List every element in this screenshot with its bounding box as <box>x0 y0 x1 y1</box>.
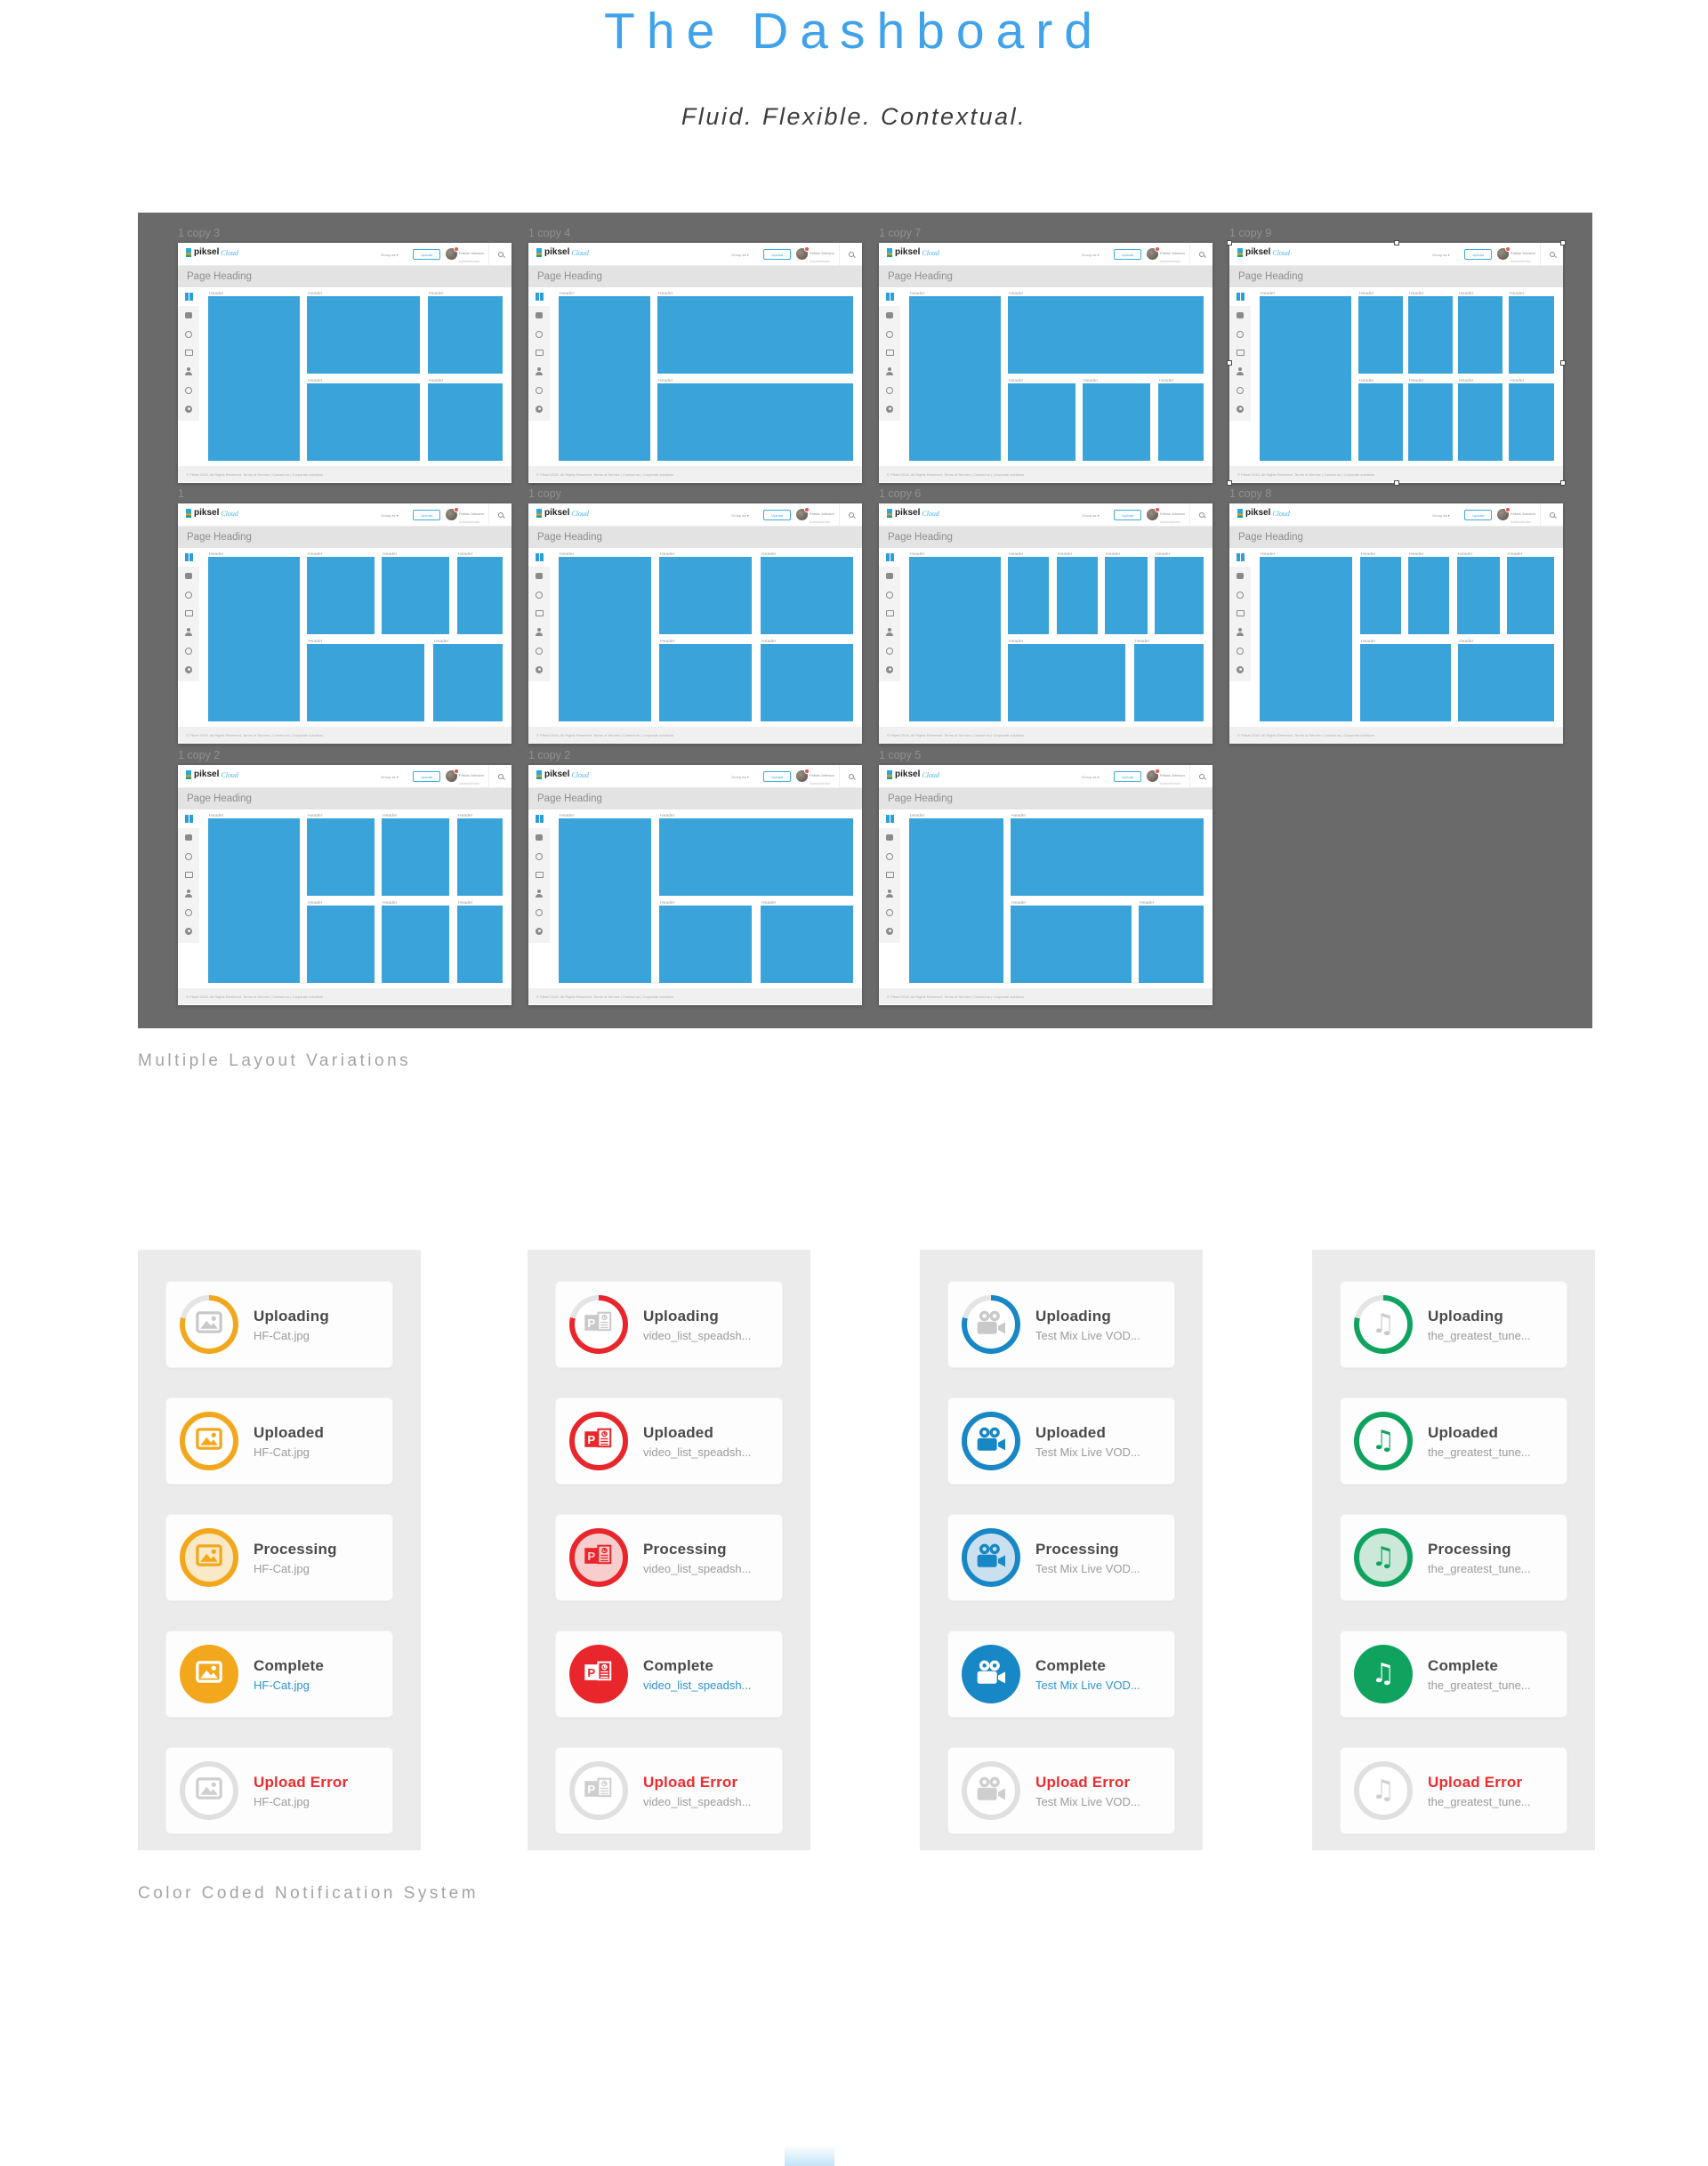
piksel-logo: pikselCloud <box>536 248 589 257</box>
content-block-header: Header <box>1140 900 1154 905</box>
upload-button[interactable]: Upload <box>763 249 791 260</box>
status-badge <box>962 1412 1020 1470</box>
search-icon <box>1550 252 1555 257</box>
sidebar-item-settings[interactable] <box>178 399 199 418</box>
page-heading-band: Page Heading <box>528 788 862 809</box>
search-button[interactable] <box>488 503 512 527</box>
sidebar-item-users[interactable] <box>178 362 199 381</box>
dashboard-mockup[interactable]: pikselCloudGroup as ▾UploadFelicia Johns… <box>528 765 862 1005</box>
layouts-caption: Multiple Layout Variations <box>138 1051 411 1071</box>
user-role: Administrator <box>1511 259 1525 263</box>
content-block-header: Header <box>910 813 924 817</box>
avatar[interactable] <box>446 248 457 260</box>
mockup-footer: © Piksel 2015. All Rights Reserved. Term… <box>178 988 512 1004</box>
sidebar-item-media[interactable] <box>879 828 900 847</box>
sidebar-item-users-icon <box>886 894 893 898</box>
notification-filename: HF-Cat.jpg <box>254 1679 324 1692</box>
selection-handle[interactable] <box>1227 360 1232 366</box>
sidebar-item-devices[interactable] <box>528 343 550 362</box>
dashboard-mockup[interactable]: pikselCloudGroup as ▾UploadFelicia Johns… <box>528 243 862 483</box>
sidebar-item-devices-icon <box>886 872 894 878</box>
content-block-header: Header <box>1261 552 1275 556</box>
avatar[interactable] <box>1497 248 1509 260</box>
notification-card[interactable]: Upload ErrorTest Mix Live VOD... <box>947 1747 1175 1834</box>
content-block: Header <box>1458 383 1503 461</box>
dashboard-mockup[interactable]: pikselCloudGroup as ▾UploadFelicia Johns… <box>879 765 1213 1005</box>
sidebar-item-analytics[interactable] <box>879 585 900 604</box>
notification-text: Upload ErrorHF-Cat.jpg <box>254 1774 348 1808</box>
powerpoint-icon: P <box>584 1776 614 1806</box>
sidebar-item-users[interactable] <box>879 623 900 641</box>
sidebar-item-media[interactable] <box>879 306 900 325</box>
dashboard-mockup[interactable]: pikselCloudGroup as ▾UploadFelicia Johns… <box>528 503 862 744</box>
sidebar-item-users[interactable] <box>1229 623 1251 641</box>
group-as-dropdown[interactable]: Group as ▾ <box>731 775 749 779</box>
status-badge-hole: P <box>575 1300 623 1349</box>
piksel-logo-text: piksel <box>895 770 920 779</box>
sidebar-item-history-icon <box>185 648 192 655</box>
dashboard-mockup[interactable]: pikselCloudGroup as ▾UploadFelicia Johns… <box>178 503 512 744</box>
status-badge-hole <box>185 1300 233 1349</box>
mockup-footer-text: © Piksel 2015. All Rights Reserved. Term… <box>186 994 323 999</box>
group-as-dropdown[interactable]: Group as ▾ <box>381 513 399 518</box>
sidebar-item-media[interactable] <box>1229 567 1251 585</box>
content-block: Header <box>1360 557 1401 634</box>
sidebar-item-dashboard[interactable] <box>1229 287 1251 306</box>
status-badge <box>180 1295 238 1354</box>
user-role: Administrator <box>459 781 473 785</box>
sidebar-item-analytics[interactable] <box>178 847 199 866</box>
upload-button[interactable]: Upload <box>413 771 440 782</box>
mockup-footer-text: © Piksel 2015. All Rights Reserved. Term… <box>536 994 673 999</box>
sidebar-item-users[interactable] <box>879 362 900 381</box>
piksel-logo-text: piksel <box>194 770 219 779</box>
sidebar-item-settings[interactable] <box>528 399 550 418</box>
sidebar-item-media-icon <box>185 573 192 579</box>
sidebar-item-history[interactable] <box>528 903 550 922</box>
avatar[interactable] <box>1497 509 1509 520</box>
sidebar-item-dashboard[interactable] <box>178 809 199 828</box>
music-note-icon: ♫ <box>1372 1661 1396 1687</box>
selection-handle[interactable] <box>1227 480 1232 486</box>
status-badge <box>180 1761 238 1820</box>
sidebar-item-analytics-icon <box>886 331 893 338</box>
notification-card[interactable]: Upload ErrorHF-Cat.jpg <box>165 1747 393 1834</box>
sidebar-item-settings-icon <box>185 406 192 413</box>
sidebar-item-history-icon <box>886 387 893 394</box>
sidebar-item-dashboard[interactable] <box>178 287 199 306</box>
avatar[interactable] <box>796 509 808 520</box>
sidebar-item-devices[interactable] <box>879 866 900 884</box>
sidebar-item-history-icon <box>536 909 543 916</box>
mockup-topbar: pikselCloudGroup as ▾UploadFelicia Johns… <box>178 503 512 527</box>
group-as-dropdown[interactable]: Group as ▾ <box>1432 253 1450 257</box>
user-info: Felicia JohnsonAdministrator <box>1160 510 1188 526</box>
user-name: Felicia Johnson <box>1511 251 1525 255</box>
selection-handle[interactable] <box>1394 240 1399 246</box>
sidebar-item-media-icon <box>185 834 192 841</box>
sidebar-item-analytics[interactable] <box>1229 585 1251 604</box>
notification-card[interactable]: PUpload Errorvideo_list_speadsh... <box>555 1747 783 1834</box>
sidebar-item-settings[interactable] <box>879 399 900 418</box>
sidebar-item-users-icon <box>886 372 893 375</box>
mockup-sidebar <box>879 809 900 943</box>
notification-card[interactable]: PCompletevideo_list_speadsh... <box>555 1631 783 1718</box>
sidebar-item-settings-icon <box>536 928 543 935</box>
content-block-header: Header <box>560 291 574 295</box>
search-button[interactable] <box>1189 765 1213 788</box>
svg-text:P: P <box>587 1665 595 1679</box>
sidebar-item-history[interactable] <box>1229 381 1251 399</box>
sidebar-item-settings-icon <box>886 928 893 935</box>
upload-button-label: Upload <box>771 775 783 779</box>
status-badge-hole: P <box>575 1767 623 1815</box>
content-block-header: Header <box>1156 552 1170 556</box>
content-block-header: Header <box>1009 378 1023 382</box>
sidebar-item-history[interactable] <box>528 641 550 660</box>
sidebar-item-dashboard[interactable] <box>879 287 900 306</box>
mockup-footer: © Piksel 2015. All Rights Reserved. Term… <box>528 988 862 1004</box>
sidebar-item-devices[interactable] <box>528 866 550 884</box>
group-as-dropdown[interactable]: Group as ▾ <box>1082 253 1100 257</box>
selection-handle[interactable] <box>1560 240 1566 246</box>
notification-card[interactable]: ♫Upload Errorthe_greatest_tune... <box>1340 1747 1567 1834</box>
content-block: Header <box>457 906 503 983</box>
selection-handle[interactable] <box>1560 360 1566 366</box>
content-block: Header <box>307 557 375 634</box>
notification-card[interactable]: PProcessingvideo_list_speadsh... <box>555 1514 783 1601</box>
user-role: Administrator <box>810 519 824 524</box>
search-button[interactable] <box>1189 503 1213 527</box>
content-block-header: Header <box>308 552 322 556</box>
user-role: Administrator <box>810 259 824 263</box>
notification-card[interactable]: UploadingTest Mix Live VOD... <box>947 1281 1175 1368</box>
sidebar-item-history[interactable] <box>879 381 900 399</box>
notification-filename: HF-Cat.jpg <box>254 1329 329 1342</box>
notification-card[interactable]: CompleteHF-Cat.jpg <box>165 1631 393 1718</box>
sidebar-item-devices[interactable] <box>178 604 199 623</box>
sidebar-item-users-icon <box>1237 372 1244 375</box>
avatar[interactable] <box>1147 509 1158 520</box>
sidebar-item-devices[interactable] <box>879 343 900 362</box>
notification-card[interactable]: ProcessingTest Mix Live VOD... <box>947 1514 1175 1601</box>
status-badge-hole: P <box>569 1645 628 1703</box>
mockup-sidebar <box>178 548 199 681</box>
sidebar-item-history[interactable] <box>879 641 900 660</box>
sidebar-item-analytics[interactable] <box>1229 325 1251 343</box>
sidebar-item-dashboard-icon <box>185 553 193 561</box>
group-as-dropdown[interactable]: Group as ▾ <box>381 253 399 257</box>
notification-card[interactable]: PUploadedvideo_list_speadsh... <box>555 1397 783 1485</box>
notification-filename: Test Mix Live VOD... <box>1035 1795 1140 1808</box>
notification-card[interactable]: PUploadingvideo_list_speadsh... <box>555 1281 783 1368</box>
user-info: Felicia JohnsonAdministrator <box>810 510 838 526</box>
sidebar-item-media[interactable] <box>178 306 199 325</box>
content-block: Header <box>1155 557 1204 634</box>
content-block: Header <box>307 296 420 374</box>
group-as-dropdown[interactable]: Group as ▾ <box>731 513 749 518</box>
upload-button[interactable]: Upload <box>1114 249 1141 260</box>
mockup-body: HeaderHeaderHeaderHeaderHeaderHeaderHead… <box>879 548 1213 727</box>
notification-card[interactable]: ♫Uploadedthe_greatest_tune... <box>1340 1397 1567 1485</box>
sidebar-item-users[interactable] <box>528 362 550 381</box>
avatar[interactable] <box>446 770 457 782</box>
notification-text: UploadedHF-Cat.jpg <box>254 1424 324 1459</box>
group-as-dropdown[interactable]: Group as ▾ <box>1432 513 1450 518</box>
sidebar-item-dashboard[interactable] <box>879 548 900 567</box>
mockup-footer-text: © Piksel 2015. All Rights Reserved. Term… <box>1237 472 1374 477</box>
sidebar-item-analytics-icon <box>536 331 543 338</box>
sidebar-item-settings-icon <box>536 666 543 673</box>
avatar[interactable] <box>446 509 457 520</box>
content-block: Header <box>1105 557 1148 634</box>
search-button[interactable] <box>839 243 862 266</box>
status-badge: ♫ <box>1354 1295 1413 1354</box>
mockup-content: HeaderHeaderHeaderHeaderHeaderHeaderHead… <box>208 818 503 983</box>
status-badge <box>962 1295 1020 1354</box>
avatar[interactable] <box>1147 248 1158 260</box>
group-as-dropdown[interactable]: Group as ▾ <box>1082 513 1100 518</box>
sidebar-item-settings[interactable] <box>178 922 199 940</box>
content-block-header: Header <box>1058 552 1072 556</box>
upload-button[interactable]: Upload <box>1114 771 1141 782</box>
notification-status: Processing <box>643 1541 751 1558</box>
sidebar-item-users[interactable] <box>1229 362 1251 381</box>
notification-card[interactable]: CompleteTest Mix Live VOD... <box>947 1631 1175 1718</box>
dashboard-mockup[interactable]: pikselCloudGroup as ▾UploadFelicia Johns… <box>879 503 1213 744</box>
content-block-header: Header <box>1508 552 1522 556</box>
content-block: Header <box>1507 557 1554 634</box>
content-block-header: Header <box>660 900 674 905</box>
notification-card[interactable]: UploadedTest Mix Live VOD... <box>947 1397 1175 1485</box>
sidebar-item-media-icon <box>536 573 543 579</box>
avatar[interactable] <box>796 770 808 782</box>
dashboard-mockup[interactable]: pikselCloudGroup as ▾UploadFelicia Johns… <box>1229 503 1563 744</box>
sidebar-item-users[interactable] <box>879 884 900 903</box>
sidebar-item-devices-icon <box>185 610 193 616</box>
music-note-glyph: ♫ <box>1372 1308 1396 1340</box>
search-icon <box>849 774 854 779</box>
sidebar-item-dashboard[interactable] <box>879 809 900 828</box>
sidebar-item-analytics[interactable] <box>528 585 550 604</box>
sidebar-item-dashboard[interactable] <box>1229 548 1251 567</box>
search-button[interactable] <box>839 765 862 788</box>
notification-status: Uploading <box>1035 1308 1140 1325</box>
sidebar-item-analytics-icon <box>185 853 192 860</box>
sidebar-item-history[interactable] <box>178 641 199 660</box>
notification-card[interactable]: UploadingHF-Cat.jpg <box>165 1281 393 1368</box>
content-block-header: Header <box>209 291 223 295</box>
content-block-header: Header <box>1409 552 1423 556</box>
content-block: Header <box>1358 383 1403 461</box>
piksel-logo-suffix: Cloud <box>922 771 939 779</box>
mockup-label: 1 copy 7 <box>879 227 1213 243</box>
sidebar-item-media[interactable] <box>528 306 550 325</box>
upload-button[interactable]: Upload <box>1464 510 1492 520</box>
avatar[interactable] <box>1147 770 1158 782</box>
search-button[interactable] <box>1540 503 1563 527</box>
user-info: Felicia JohnsonAdministrator <box>459 249 487 265</box>
sidebar-item-history[interactable] <box>528 381 550 399</box>
upload-button[interactable]: Upload <box>1114 510 1141 520</box>
piksel-logo-suffix: Cloud <box>1272 510 1290 518</box>
sidebar-item-dashboard[interactable] <box>528 809 550 828</box>
piksel-logo-suffix: Cloud <box>922 249 939 257</box>
sidebar-item-dashboard[interactable] <box>528 287 550 306</box>
sidebar-item-history[interactable] <box>178 381 199 399</box>
dashboard-mockup[interactable]: pikselCloudGroup as ▾UploadFelicia Johns… <box>879 243 1213 483</box>
mockup-footer-text: © Piksel 2015. All Rights Reserved. Term… <box>1237 733 1374 737</box>
upload-button[interactable]: Upload <box>413 249 440 260</box>
sidebar-item-media[interactable] <box>528 828 550 847</box>
sidebar-item-settings[interactable] <box>528 922 550 940</box>
mockup-topbar: pikselCloudGroup as ▾UploadFelicia Johns… <box>178 243 512 266</box>
mockup-footer-text: © Piksel 2015. All Rights Reserved. Term… <box>887 733 1024 737</box>
notification-status: Processing <box>254 1541 337 1558</box>
sidebar-item-settings[interactable] <box>178 660 199 679</box>
upload-button[interactable]: Upload <box>413 510 440 520</box>
upload-button[interactable]: Upload <box>763 771 791 782</box>
notification-card[interactable]: ♫Completethe_greatest_tune... <box>1340 1631 1567 1718</box>
sidebar-item-analytics-icon <box>1237 331 1244 338</box>
dashboard-mockup[interactable]: pikselCloudGroup as ▾UploadFelicia Johns… <box>178 765 512 1005</box>
sidebar-item-devices[interactable] <box>879 604 900 623</box>
sidebar-item-users[interactable] <box>528 884 550 903</box>
sidebar-item-analytics[interactable] <box>178 585 199 604</box>
sidebar-item-settings[interactable] <box>879 660 900 679</box>
sidebar-item-users[interactable] <box>178 623 199 641</box>
sidebar-item-media-icon <box>536 312 543 318</box>
sidebar-item-devices[interactable] <box>178 866 199 884</box>
mockup-topbar: pikselCloudGroup as ▾UploadFelicia Johns… <box>528 243 862 266</box>
sidebar-item-history[interactable] <box>178 903 199 922</box>
sidebar-item-analytics[interactable] <box>528 847 550 866</box>
user-name: Felicia Johnson <box>810 773 824 777</box>
upload-button-label: Upload <box>771 513 783 518</box>
selection-handle[interactable] <box>1227 240 1232 246</box>
piksel-logo-icon <box>887 770 892 779</box>
sidebar-item-dashboard[interactable] <box>178 548 199 567</box>
sidebar-item-devices[interactable] <box>1229 604 1251 623</box>
mockup-body: HeaderHeaderHeaderHeaderHeaderHeaderHead… <box>178 809 512 988</box>
sidebar-item-users[interactable] <box>528 623 550 641</box>
content-block: Header <box>909 818 1003 983</box>
sidebar-item-dashboard[interactable] <box>528 548 550 567</box>
sidebar-item-settings[interactable] <box>1229 399 1251 418</box>
sidebar-item-users[interactable] <box>178 884 199 903</box>
upload-button[interactable]: Upload <box>763 510 791 520</box>
content-block: Header <box>657 296 853 374</box>
content-block: Header <box>1360 644 1452 721</box>
notification-status: Upload Error <box>1035 1774 1140 1792</box>
page-heading-band: Page Heading <box>879 266 1213 287</box>
sidebar-item-analytics[interactable] <box>879 325 900 343</box>
sidebar-item-devices[interactable] <box>178 343 199 362</box>
selection-handle[interactable] <box>1394 480 1399 486</box>
sidebar-item-media[interactable] <box>528 567 550 585</box>
content-block: Header <box>761 557 853 634</box>
group-as-dropdown[interactable]: Group as ▾ <box>731 253 749 257</box>
notification-filename: video_list_speadsh... <box>643 1329 751 1342</box>
group-as-dropdown[interactable]: Group as ▾ <box>1082 775 1100 779</box>
notification-filename: video_list_speadsh... <box>643 1562 751 1575</box>
sidebar-item-media[interactable] <box>879 567 900 585</box>
content-block: Header <box>559 557 651 721</box>
status-badge-hole <box>185 1767 233 1815</box>
dashboard-mockup[interactable]: pikselCloudGroup as ▾UploadFelicia Johns… <box>1229 243 1563 483</box>
notification-card[interactable]: ♫Uploadingthe_greatest_tune... <box>1340 1281 1567 1368</box>
content-block-header: Header <box>308 813 322 817</box>
content-block-header: Header <box>1084 378 1098 382</box>
sidebar-item-media[interactable] <box>1229 306 1251 325</box>
sidebar-item-devices[interactable] <box>1229 343 1251 362</box>
sidebar-item-history[interactable] <box>1229 641 1251 660</box>
selection-handle[interactable] <box>1560 480 1566 486</box>
search-icon <box>1550 512 1555 518</box>
content-block-header: Header <box>209 552 223 556</box>
notification-card[interactable]: ProcessingHF-Cat.jpg <box>165 1514 393 1601</box>
status-badge-hole: ♫ <box>1359 1300 1407 1349</box>
user-name: Felicia Johnson <box>810 511 824 516</box>
status-badge-hole: P <box>575 1417 623 1465</box>
image-icon <box>196 1428 222 1454</box>
mockup-label: 1 copy 2 <box>178 749 512 765</box>
search-button[interactable] <box>839 503 862 527</box>
search-button[interactable] <box>488 765 512 788</box>
sidebar-item-settings[interactable] <box>1229 660 1251 679</box>
layout-showcase-canvas: 1 copy 3pikselCloudGroup as ▾UploadFelic… <box>138 213 1592 1028</box>
notification-card[interactable]: ♫Processingthe_greatest_tune... <box>1340 1514 1567 1601</box>
sidebar-item-analytics[interactable] <box>178 325 199 343</box>
sidebar-item-media[interactable] <box>178 828 199 847</box>
search-button[interactable] <box>1540 243 1563 266</box>
notification-status: Complete <box>254 1657 324 1675</box>
content-block-header: Header <box>458 900 472 905</box>
notification-card[interactable]: UploadedHF-Cat.jpg <box>165 1397 393 1485</box>
search-button[interactable] <box>1189 243 1213 266</box>
content-block-header: Header <box>458 813 472 817</box>
search-button[interactable] <box>488 243 512 266</box>
sidebar-item-analytics[interactable] <box>528 325 550 343</box>
sidebar-item-history[interactable] <box>879 903 900 922</box>
sidebar-item-devices[interactable] <box>528 604 550 623</box>
content-block-header: Header <box>458 552 472 556</box>
sidebar-item-media[interactable] <box>178 567 199 585</box>
search-icon <box>1199 512 1204 518</box>
content-block: Header <box>559 296 650 461</box>
video-camera-icon <box>975 1776 1007 1806</box>
avatar[interactable] <box>796 248 808 260</box>
user-info: Felicia JohnsonAdministrator <box>459 771 487 787</box>
group-as-dropdown[interactable]: Group as ▾ <box>381 775 399 779</box>
mockup-sidebar <box>178 287 199 421</box>
mockup-content: HeaderHeaderHeaderHeaderHeaderHeaderHead… <box>1260 296 1554 461</box>
search-icon <box>498 512 504 518</box>
mockup-footer: © Piksel 2015. All Rights Reserved. Term… <box>528 727 862 743</box>
upload-button[interactable]: Upload <box>1464 249 1492 260</box>
page-heading-band: Page Heading <box>528 527 862 548</box>
sidebar-item-analytics-icon <box>536 853 543 860</box>
content-block-header: Header <box>1458 552 1472 556</box>
notifications-caption: Color Coded Notification System <box>138 1884 479 1904</box>
sidebar-item-settings[interactable] <box>879 922 900 940</box>
status-badge-hole <box>967 1417 1015 1465</box>
content-block-header: Header <box>1106 552 1120 556</box>
sidebar-item-settings[interactable] <box>528 660 550 679</box>
sidebar-item-analytics[interactable] <box>879 847 900 866</box>
content-block: Header <box>382 557 449 634</box>
dashboard-mockup[interactable]: pikselCloudGroup as ▾UploadFelicia Johns… <box>178 243 512 483</box>
